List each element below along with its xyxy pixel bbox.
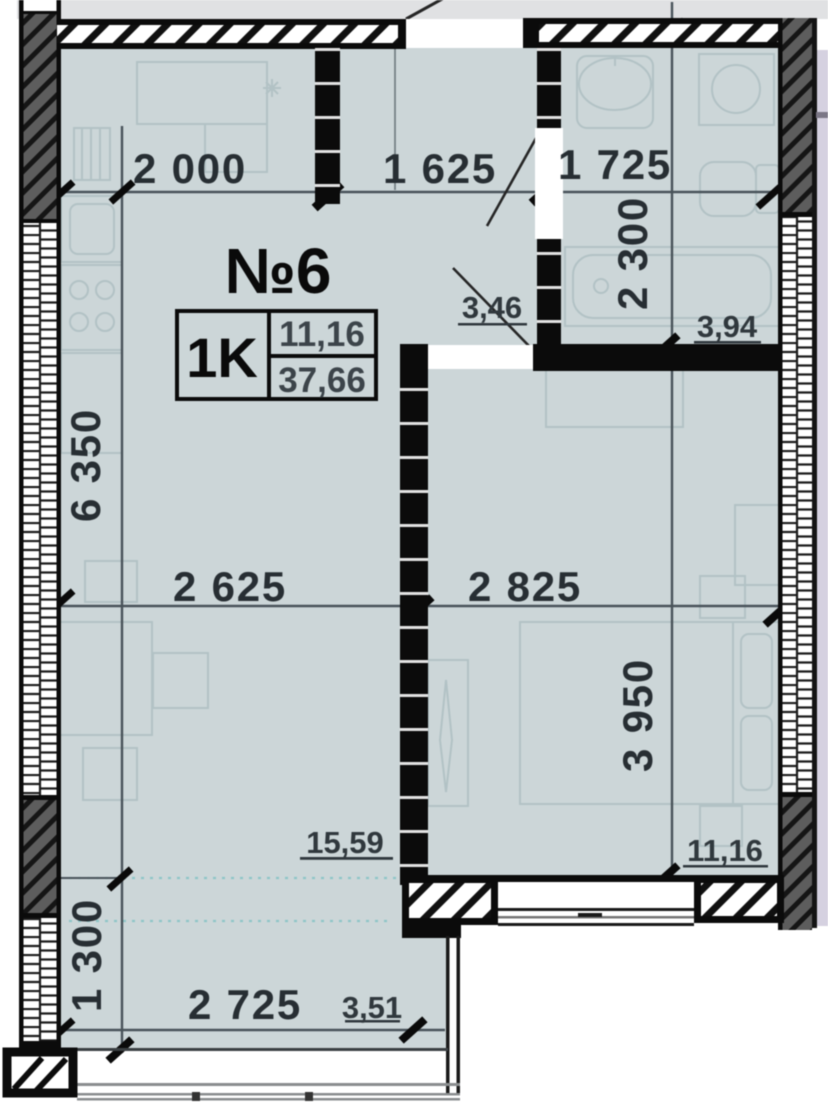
svg-text:2 825: 2 825 — [468, 563, 582, 610]
svg-text:1 725: 1 725 — [558, 141, 672, 188]
svg-text:1 300: 1 300 — [63, 898, 110, 1012]
svg-text:2 725: 2 725 — [188, 981, 302, 1028]
svg-text:№6: №6 — [225, 235, 332, 307]
svg-text:2 625: 2 625 — [173, 563, 287, 610]
svg-text:1K: 1K — [186, 326, 258, 389]
svg-text:3,51: 3,51 — [342, 990, 402, 1025]
svg-text:2 300: 2 300 — [609, 196, 656, 310]
svg-text:2 000: 2 000 — [133, 145, 247, 192]
svg-text:1 625: 1 625 — [383, 145, 497, 192]
svg-text:3,46: 3,46 — [462, 290, 522, 325]
svg-text:6 350: 6 350 — [62, 408, 109, 522]
svg-text:3,94: 3,94 — [697, 309, 758, 344]
svg-text:15,59: 15,59 — [306, 825, 384, 860]
svg-text:11,16: 11,16 — [687, 833, 763, 868]
svg-text:37,66: 37,66 — [278, 361, 366, 400]
svg-text:3 950: 3 950 — [614, 658, 661, 772]
svg-text:11,16: 11,16 — [279, 315, 365, 354]
